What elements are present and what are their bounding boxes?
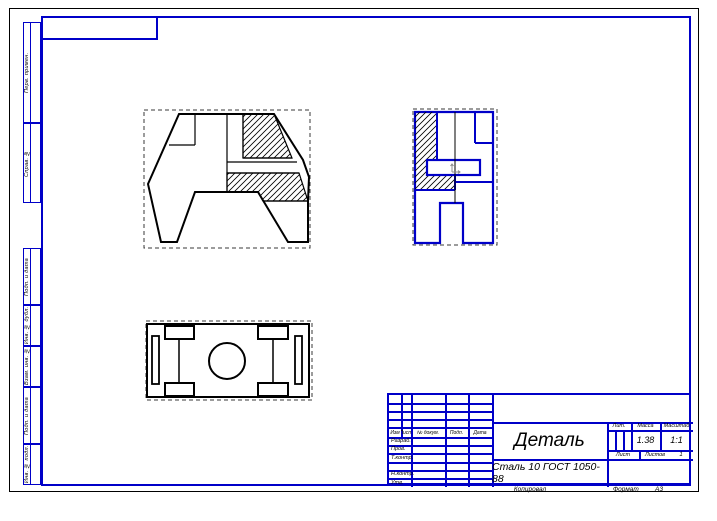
row-label-checked: Пров. — [389, 445, 423, 453]
right-slot — [295, 336, 302, 384]
left-slot — [152, 336, 159, 384]
right-rib-bottom-flange — [258, 383, 288, 396]
margin-column-sign-date-1: Подп. и дата — [23, 248, 41, 305]
front-view[interactable] — [143, 109, 311, 249]
margin-column-label: Инв. № подл. — [23, 445, 31, 484]
drawing-sheet: Перв. примен. Справ. № Подп. и дата Инв.… — [0, 0, 717, 521]
grid-line — [445, 395, 447, 487]
col-header-list: Лист — [401, 428, 411, 437]
margin-column-reference-number: Справ. № — [23, 123, 41, 203]
row-label-developed: Разраб. — [389, 437, 423, 445]
lit-subdivider — [615, 430, 617, 450]
mass-label: Масса — [631, 422, 660, 430]
right-rib-top-flange — [258, 326, 288, 339]
margin-column-label: Взам. инв. № — [23, 347, 31, 386]
scale-label: Масштаб — [660, 422, 693, 430]
scale-value[interactable]: 1:1 — [660, 430, 693, 450]
row-label-tcontrol: Т.контр. — [389, 453, 423, 462]
designation-box — [41, 16, 158, 40]
margin-column-label: Справ. № — [23, 124, 31, 202]
top-view[interactable] — [145, 320, 313, 401]
side-slot — [427, 160, 480, 175]
mass-value[interactable]: 1.38 — [631, 430, 660, 450]
title-block: Изм Лист № докум. Подп. Дата Разраб. Про… — [387, 393, 691, 485]
grid-line — [389, 419, 492, 421]
sheets-value: 1 — [671, 450, 691, 459]
lit-label: Лит. — [607, 422, 631, 430]
margin-column-label: Подп. и дата — [23, 388, 31, 443]
side-view[interactable] — [412, 108, 498, 246]
margin-column-repl-inv: Взам. инв. № — [23, 346, 41, 387]
margin-column-first-application: Перв. примен. — [23, 22, 41, 123]
part-name[interactable]: Деталь — [492, 422, 607, 459]
copied-label: Копировал — [495, 486, 565, 493]
section-hatch-lower — [227, 173, 308, 201]
grid-line — [389, 462, 492, 464]
material-spec[interactable]: Сталь 10 ГОСТ 1050-88 — [492, 459, 607, 487]
col-header-sign: Подп. — [445, 428, 468, 437]
margin-column-label: Инв. № дубл. — [23, 306, 31, 345]
row-label-approved: Утв. — [389, 478, 423, 487]
grid-line — [389, 411, 492, 413]
row-label-ncontrol: Н.контр. — [389, 470, 423, 478]
margin-column-label: Перв. примен. — [23, 23, 31, 122]
col-header-docnum: № докум. — [411, 428, 445, 437]
grid-line — [389, 403, 492, 405]
grid-line — [468, 395, 470, 487]
sheet-label: Лист — [607, 450, 639, 459]
col-header-izm: Изм — [389, 428, 401, 437]
col-header-date: Дата — [468, 428, 492, 437]
margin-column-inv-dupl: Инв. № дубл. — [23, 305, 41, 346]
format-label: Формат — [613, 486, 639, 493]
format-value: А3 — [655, 486, 663, 493]
margin-column-sign-date-2: Подп. и дата — [23, 387, 41, 444]
lit-subdivider — [623, 430, 625, 450]
sheets-label: Листов — [639, 450, 671, 459]
margin-column-inv-orig: Инв. № подл. — [23, 444, 41, 485]
center-hole — [209, 343, 245, 379]
section-hatch-band — [415, 175, 455, 190]
left-rib-bottom-flange — [165, 383, 194, 396]
margin-column-label: Подп. и дата — [23, 249, 31, 304]
left-rib-top-flange — [165, 326, 194, 339]
